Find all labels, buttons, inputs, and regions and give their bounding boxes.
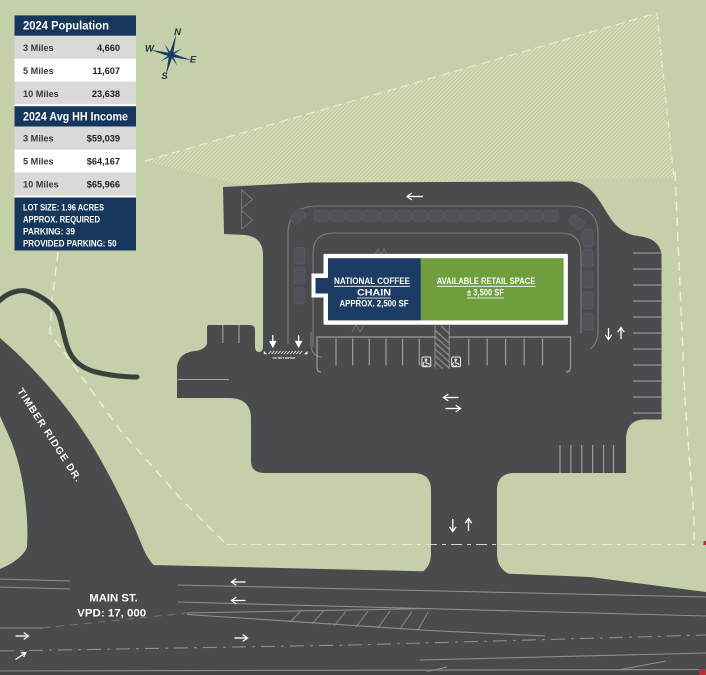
svg-text:VPD: 17, 000: VPD: 17, 000 [77,608,146,620]
svg-text:LOT SIZE: 1.96 ACRES: LOT SIZE: 1.96 ACRES [23,203,104,213]
svg-text:S: S [161,71,168,82]
svg-text:APPROX. 2,500 SF: APPROX. 2,500 SF [340,299,410,309]
svg-text:$59,039: $59,039 [87,134,120,144]
svg-text:APPROX. REQUIRED: APPROX. REQUIRED [23,215,100,225]
svg-text:2024 Avg HH Income: 2024 Avg HH Income [23,112,128,124]
svg-text:$65,966: $65,966 [87,180,120,190]
svg-text:± 3,500 SF: ± 3,500 SF [467,288,505,298]
svg-text:2024 Population: 2024 Population [23,21,109,33]
svg-text:N: N [174,27,182,38]
svg-text:W: W [145,44,155,55]
svg-text:MAIN ST.: MAIN ST. [89,593,138,605]
svg-text:PARKING: 39: PARKING: 39 [23,227,75,237]
svg-text:$64,167: $64,167 [87,157,120,167]
svg-text:NATIONAL COFFEE: NATIONAL COFFEE [334,276,410,286]
svg-text:4,660: 4,660 [97,43,120,53]
svg-text:3 Miles: 3 Miles [23,43,54,53]
svg-text:5 Miles: 5 Miles [23,157,54,167]
svg-text:5 Miles: 5 Miles [23,66,54,76]
svg-text:10 Miles: 10 Miles [23,180,59,190]
svg-text:AVAILABLE RETAIL SPACE: AVAILABLE RETAIL SPACE [437,276,536,286]
svg-text:11,607: 11,607 [92,66,120,76]
svg-text:23,638: 23,638 [92,89,120,99]
svg-text:3 Miles: 3 Miles [23,134,54,144]
svg-text:DO NOT ENTER: DO NOT ENTER [273,356,296,360]
svg-text:PROVIDED PARKING: 50: PROVIDED PARKING: 50 [23,239,117,249]
svg-text:10 Miles: 10 Miles [23,89,59,99]
svg-text:CHAIN: CHAIN [357,288,391,298]
svg-text:E: E [190,55,197,66]
